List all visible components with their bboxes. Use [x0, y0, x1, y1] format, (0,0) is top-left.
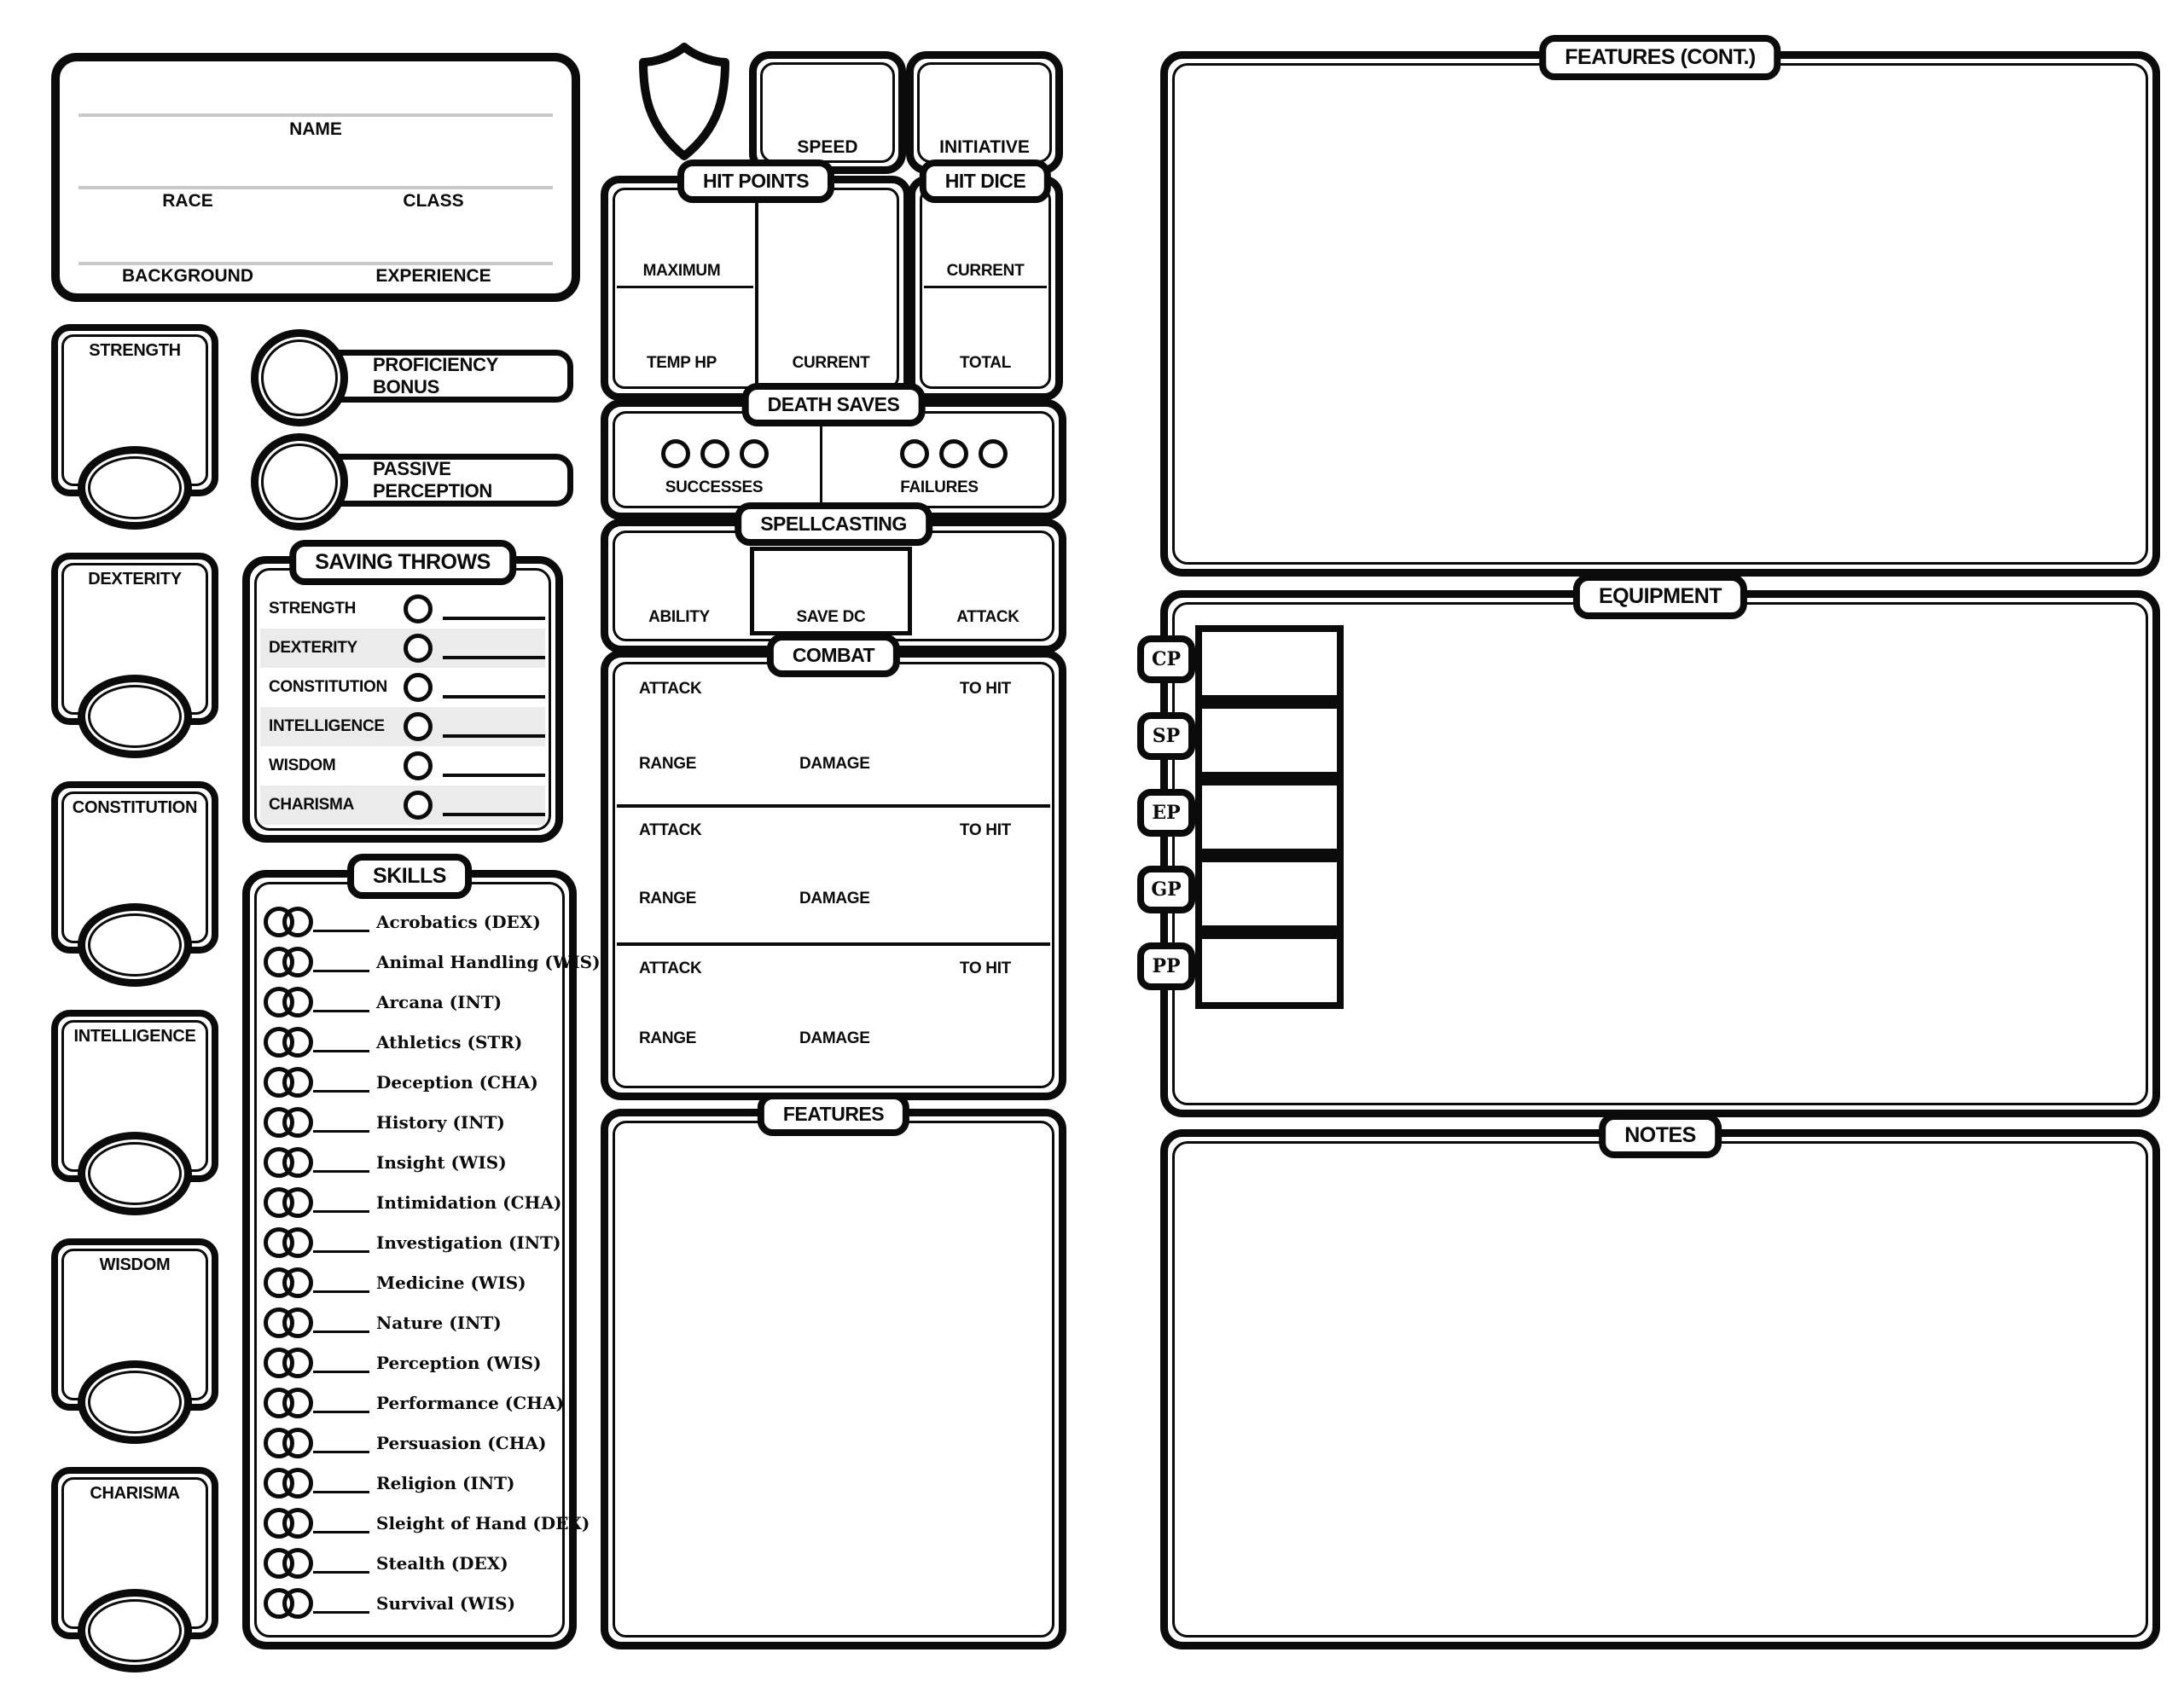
skill-row[interactable]: Investigation (INT) [264, 1224, 561, 1261]
death-save-success-circle[interactable] [740, 439, 769, 468]
hp-current-label: CURRENT [758, 354, 903, 373]
death-save-failure-circle[interactable] [900, 439, 929, 468]
skill-proficiency-circles[interactable] [264, 1508, 313, 1539]
skill-proficiency-circles[interactable] [264, 1147, 313, 1178]
hp-maximum-rule [617, 286, 753, 288]
name-label: NAME [60, 119, 572, 140]
features-cont-area[interactable] [1180, 71, 2140, 557]
saving-throw-row-wisdom: WISDOM [260, 746, 545, 786]
hit-dice-total-field[interactable] [926, 291, 1045, 351]
wisdom-save-line[interactable] [443, 774, 545, 777]
race-class-rule [78, 186, 553, 189]
skill-proficiency-circles[interactable] [264, 1187, 313, 1218]
skill-modifier-line[interactable] [313, 970, 369, 972]
hit-dice-title: HIT DICE [920, 159, 1051, 203]
combat-title: COMBAT [767, 634, 900, 677]
class-label: CLASS [295, 191, 572, 212]
death-save-failure-circle[interactable] [939, 439, 968, 468]
constitution-save-line[interactable] [443, 695, 545, 699]
skill-modifier-line[interactable] [313, 1491, 369, 1493]
skill-modifier-line[interactable] [313, 1531, 369, 1533]
copper-pieces-tab: CP [1137, 635, 1195, 683]
hit-dice-panel: HIT DICE CURRENT TOTAL [908, 176, 1063, 401]
race-class-field[interactable] [68, 147, 563, 184]
hit-dice-current-label: CURRENT [915, 262, 1055, 281]
skill-proficiency-circles[interactable] [264, 947, 313, 977]
skill-proficiency-circles[interactable] [264, 1348, 313, 1378]
skill-proficiency-circles[interactable] [264, 1227, 313, 1258]
notes-area[interactable] [1180, 1149, 2140, 1630]
background-experience-rule [78, 262, 553, 265]
equipment-panel: EQUIPMENT CP SP EP GP PP [1160, 590, 2160, 1117]
death-save-failure-circle[interactable] [979, 439, 1008, 468]
dexterity-save-line[interactable] [443, 656, 545, 659]
skill-modifier-line[interactable] [313, 1451, 369, 1453]
dexterity-save-circle[interactable] [404, 634, 433, 663]
skill-row[interactable]: Religion (INT) [264, 1464, 514, 1502]
charisma-save-circle[interactable] [404, 791, 433, 820]
hp-temp-label: TEMP HP [608, 354, 755, 373]
speed-label: SPEED [757, 137, 898, 158]
strength-save-circle[interactable] [404, 594, 433, 623]
spellcasting-save-dc-label: SAVE DC [750, 608, 912, 627]
copper-pieces-box[interactable] [1195, 625, 1344, 702]
skill-proficiency-circles[interactable] [264, 987, 313, 1017]
skill-row[interactable]: Deception (CHA) [264, 1064, 538, 1101]
gold-pieces-tab: GP [1137, 866, 1195, 913]
spellcasting-attack-label: ATTACK [917, 608, 1059, 627]
intelligence-save-line[interactable] [443, 734, 545, 738]
skill-row[interactable]: History (INT) [264, 1104, 505, 1141]
features-cont-panel: FEATURES (CONT.) [1160, 51, 2160, 577]
skill-row[interactable]: Performance (CHA) [264, 1384, 564, 1422]
death-saves-successes-label: SUCCESSES [608, 478, 820, 497]
skill-modifier-line[interactable] [313, 1210, 369, 1213]
skill-modifier-line[interactable] [313, 1170, 369, 1173]
platinum-pieces-tab: PP [1137, 942, 1195, 990]
skill-proficiency-circles[interactable] [264, 1107, 313, 1138]
hit-dice-total-label: TOTAL [915, 354, 1055, 373]
armor-class-shield-icon[interactable] [635, 41, 734, 162]
ability-box-constitution[interactable]: CONSTITUTION [51, 781, 218, 954]
passive-perception-label: PASSIVE PERCEPTION [373, 458, 567, 502]
skill-modifier-line[interactable] [313, 1290, 369, 1293]
features-area[interactable] [620, 1128, 1047, 1630]
dexterity-label: DEXTERITY [58, 570, 212, 589]
hp-temp-field[interactable] [619, 291, 746, 351]
name-field[interactable] [68, 70, 563, 113]
saving-throw-row-dexterity: DEXTERITY [260, 629, 545, 668]
wisdom-modifier-oval[interactable] [78, 1360, 192, 1444]
constitution-label: CONSTITUTION [58, 798, 212, 818]
wisdom-label: WISDOM [58, 1255, 212, 1275]
silver-pieces-tab: SP [1137, 712, 1195, 760]
death-saves-title: DEATH SAVES [742, 383, 926, 426]
equipment-area[interactable] [1356, 610, 2140, 1098]
skill-modifier-line[interactable] [313, 1411, 369, 1413]
skill-proficiency-circles[interactable] [264, 907, 313, 937]
ability-box-charisma[interactable]: CHARISMA [51, 1467, 218, 1639]
silver-pieces-box[interactable] [1195, 702, 1344, 779]
skill-row[interactable]: Sleight of Hand (DEX) [264, 1504, 590, 1542]
hit-dice-current-field[interactable] [926, 194, 1045, 258]
strength-label: STRENGTH [58, 341, 212, 361]
proficiency-bonus-circle[interactable] [251, 329, 348, 426]
name-rule [78, 113, 553, 117]
skill-row[interactable]: Acrobatics (DEX) [264, 903, 541, 941]
ability-box-intelligence[interactable]: INTELLIGENCE [51, 1010, 218, 1182]
constitution-modifier-oval[interactable] [78, 903, 192, 987]
death-save-success-circle[interactable] [661, 439, 690, 468]
spellcasting-title: SPELLCASTING [735, 502, 932, 546]
saving-throw-row-strength: STRENGTH [260, 589, 545, 629]
skill-row[interactable]: Perception (WIS) [264, 1344, 542, 1382]
strength-save-line[interactable] [443, 617, 545, 620]
background-experience-field[interactable] [68, 223, 563, 259]
hp-maximum-label: MAXIMUM [608, 262, 755, 281]
intelligence-label: INTELLIGENCE [58, 1027, 212, 1046]
speed-box[interactable]: SPEED [749, 51, 906, 174]
charisma-save-line[interactable] [443, 813, 545, 816]
hp-current-field[interactable] [762, 194, 893, 347]
character-sheet: NAME RACE CLASS BACKGROUND EXPERIENCE ST… [0, 0, 2184, 1687]
features-cont-title: FEATURES (CONT.) [1539, 35, 1780, 80]
skill-row[interactable]: Arcana (INT) [264, 983, 502, 1021]
passive-perception-circle[interactable] [251, 433, 348, 530]
skill-row[interactable]: Intimidation (CHA) [264, 1184, 561, 1221]
gold-pieces-box[interactable] [1195, 855, 1344, 932]
combat-panel: COMBAT ATTACK TO HIT RANGE DAMAGE ATTACK… [601, 650, 1066, 1100]
intelligence-modifier-oval[interactable] [78, 1132, 192, 1215]
wisdom-save-circle[interactable] [404, 751, 433, 780]
hit-points-panel: HIT POINTS MAXIMUM TEMP HP CURRENT [601, 176, 911, 401]
skill-row[interactable]: Survival (WIS) [264, 1585, 515, 1622]
skill-proficiency-circles[interactable] [264, 1027, 313, 1058]
experience-label: EXPERIENCE [295, 266, 572, 287]
skill-row[interactable]: Athletics (STR) [264, 1023, 522, 1061]
skill-row[interactable]: Insight (WIS) [264, 1144, 507, 1181]
skill-modifier-line[interactable] [313, 1571, 369, 1574]
skills-title: SKILLS [347, 854, 472, 899]
initiative-label: INITIATIVE [914, 137, 1055, 158]
electrum-pieces-tab: EP [1137, 789, 1195, 837]
constitution-save-circle[interactable] [404, 673, 433, 702]
skill-modifier-line[interactable] [313, 1371, 369, 1373]
skill-row[interactable]: Medicine (WIS) [264, 1264, 526, 1301]
skills-panel: SKILLS Acrobatics (DEX) Animal Handling … [242, 870, 577, 1649]
saving-throws-title: SAVING THROWS [289, 540, 516, 585]
initiative-box[interactable]: INITIATIVE [906, 51, 1063, 174]
hit-dice-rule [924, 286, 1047, 288]
skill-row[interactable]: Persuasion (CHA) [264, 1424, 546, 1462]
skill-modifier-line[interactable] [313, 930, 369, 932]
skill-proficiency-circles[interactable] [264, 1388, 313, 1418]
skill-row[interactable]: Animal Handling (WIS) [264, 943, 601, 981]
ability-box-wisdom[interactable]: WISDOM [51, 1238, 218, 1411]
charisma-modifier-oval[interactable] [78, 1589, 192, 1673]
skill-modifier-line[interactable] [313, 1130, 369, 1133]
ability-box-dexterity[interactable]: DEXTERITY [51, 553, 218, 725]
hit-points-title: HIT POINTS [677, 159, 834, 203]
character-info-box: NAME RACE CLASS BACKGROUND EXPERIENCE [51, 53, 580, 302]
skill-row[interactable]: Nature (INT) [264, 1304, 502, 1342]
combat-divider [617, 942, 1050, 946]
skill-proficiency-circles[interactable] [264, 1428, 313, 1458]
electrum-pieces-box[interactable] [1195, 779, 1344, 855]
charisma-label: CHARISMA [58, 1484, 212, 1504]
spellcasting-ability-label: ABILITY [608, 608, 750, 627]
background-label: BACKGROUND [60, 266, 316, 287]
saving-throw-row-intelligence: INTELLIGENCE [260, 707, 545, 746]
equipment-title: EQUIPMENT [1573, 574, 1747, 619]
skill-proficiency-circles[interactable] [264, 1588, 313, 1619]
attack-row[interactable]: ATTACK TO HIT RANGE DAMAGE [619, 948, 1048, 1082]
hp-maximum-field[interactable] [619, 194, 746, 262]
dexterity-modifier-oval[interactable] [78, 675, 192, 758]
skill-proficiency-circles[interactable] [264, 1067, 313, 1098]
saving-throw-row-constitution: CONSTITUTION [260, 668, 545, 707]
death-save-success-circle[interactable] [700, 439, 729, 468]
death-saves-failures-label: FAILURES [820, 478, 1059, 497]
features-title: FEATURES [758, 1093, 909, 1136]
platinum-pieces-box[interactable] [1195, 932, 1344, 1009]
skill-modifier-line[interactable] [313, 1250, 369, 1253]
race-label: RACE [60, 191, 316, 212]
notes-panel: NOTES [1160, 1129, 2160, 1649]
skill-modifier-line[interactable] [313, 1050, 369, 1052]
skill-modifier-line[interactable] [313, 1330, 369, 1333]
proficiency-bonus-label: PROFICIENCY BONUS [373, 354, 567, 398]
saving-throw-row-charisma: CHARISMA [260, 786, 545, 825]
skill-proficiency-circles[interactable] [264, 1548, 313, 1579]
combat-divider [617, 804, 1050, 808]
attack-row[interactable]: ATTACK TO HIT RANGE DAMAGE [619, 809, 1048, 941]
notes-title: NOTES [1599, 1113, 1722, 1158]
skill-proficiency-circles[interactable] [264, 1468, 313, 1499]
skill-modifier-line[interactable] [313, 1010, 369, 1012]
skill-proficiency-circles[interactable] [264, 1267, 313, 1298]
skill-modifier-line[interactable] [313, 1611, 369, 1614]
intelligence-save-circle[interactable] [404, 712, 433, 741]
ability-box-strength[interactable]: STRENGTH [51, 324, 218, 496]
skill-proficiency-circles[interactable] [264, 1307, 313, 1338]
attack-row[interactable]: ATTACK TO HIT RANGE DAMAGE [619, 666, 1048, 803]
saving-throws-panel: SAVING THROWS STRENGTH DEXTERITY CONSTIT… [242, 556, 563, 843]
skill-row[interactable]: Stealth (DEX) [264, 1545, 508, 1582]
spellcasting-attack-field[interactable] [620, 536, 746, 598]
skill-modifier-line[interactable] [313, 1090, 369, 1093]
strength-modifier-oval[interactable] [78, 446, 192, 530]
features-panel: FEATURES [601, 1109, 1066, 1649]
